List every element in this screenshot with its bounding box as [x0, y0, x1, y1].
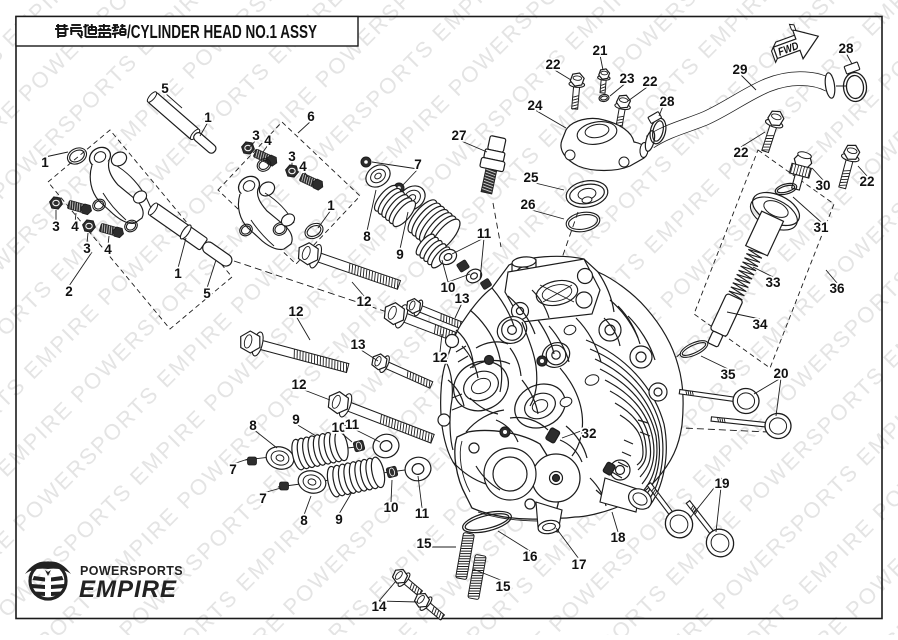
svg-text:22: 22 [642, 74, 657, 89]
svg-text:4: 4 [264, 133, 272, 148]
svg-text:22: 22 [545, 57, 560, 72]
svg-text:3: 3 [252, 128, 260, 143]
svg-text:8: 8 [363, 229, 371, 244]
svg-text:17: 17 [571, 557, 586, 572]
svg-text:4: 4 [299, 159, 307, 174]
svg-text:11: 11 [415, 506, 430, 521]
svg-text:2: 2 [65, 284, 73, 299]
svg-text:13: 13 [350, 337, 366, 352]
svg-text:28: 28 [838, 41, 854, 56]
svg-text:26: 26 [520, 197, 536, 212]
svg-text:12: 12 [288, 304, 303, 319]
svg-text:3: 3 [52, 219, 60, 234]
svg-text:7: 7 [414, 157, 422, 172]
svg-text:15: 15 [416, 536, 432, 551]
svg-text:36: 36 [829, 281, 845, 296]
svg-text:28: 28 [659, 94, 675, 109]
svg-text:5: 5 [203, 286, 211, 301]
svg-text:13: 13 [454, 291, 470, 306]
svg-text:29: 29 [732, 62, 747, 77]
svg-text:24: 24 [527, 98, 543, 113]
svg-text:12: 12 [432, 350, 447, 365]
svg-text:18: 18 [610, 530, 626, 545]
svg-text:6: 6 [307, 109, 315, 124]
svg-text:33: 33 [765, 275, 781, 290]
svg-text:25: 25 [523, 170, 539, 185]
svg-text:32: 32 [581, 426, 596, 441]
svg-text:5: 5 [161, 81, 169, 96]
svg-text:20: 20 [773, 366, 788, 381]
svg-text:7: 7 [259, 491, 267, 506]
svg-text:4: 4 [71, 219, 79, 234]
svg-text:3: 3 [288, 149, 296, 164]
svg-text:22: 22 [859, 174, 874, 189]
svg-text:12: 12 [356, 294, 371, 309]
svg-text:22: 22 [733, 145, 748, 160]
svg-text:/CYLINDER HEAD NO.1 ASSY: /CYLINDER HEAD NO.1 ASSY [127, 22, 317, 42]
svg-text:9: 9 [335, 512, 343, 527]
svg-text:27: 27 [451, 128, 466, 143]
svg-text:19: 19 [714, 476, 729, 491]
svg-text:30: 30 [815, 178, 830, 193]
svg-text:21: 21 [592, 43, 608, 58]
svg-text:1: 1 [174, 266, 182, 281]
svg-text:10: 10 [383, 500, 398, 515]
svg-text:1: 1 [327, 198, 335, 213]
svg-text:9: 9 [396, 247, 404, 262]
svg-text:1: 1 [41, 155, 49, 170]
svg-text:34: 34 [752, 317, 768, 332]
svg-text:8: 8 [300, 513, 308, 528]
svg-text:8: 8 [249, 418, 257, 433]
svg-text:1: 1 [204, 110, 212, 125]
svg-text:4: 4 [104, 242, 112, 257]
svg-text:7: 7 [229, 462, 237, 477]
svg-text:14: 14 [371, 599, 387, 614]
svg-text:15: 15 [495, 579, 511, 594]
svg-text:11: 11 [345, 417, 360, 432]
svg-text:3: 3 [83, 241, 91, 256]
svg-text:9: 9 [292, 412, 300, 427]
svg-text:31: 31 [813, 220, 829, 235]
svg-text:EMPIRE: EMPIRE [79, 576, 177, 603]
svg-text:11: 11 [477, 226, 492, 241]
svg-text:12: 12 [291, 377, 306, 392]
svg-text:10: 10 [440, 280, 455, 295]
svg-text:16: 16 [522, 549, 538, 564]
svg-text:35: 35 [720, 367, 736, 382]
svg-text:23: 23 [619, 71, 635, 86]
